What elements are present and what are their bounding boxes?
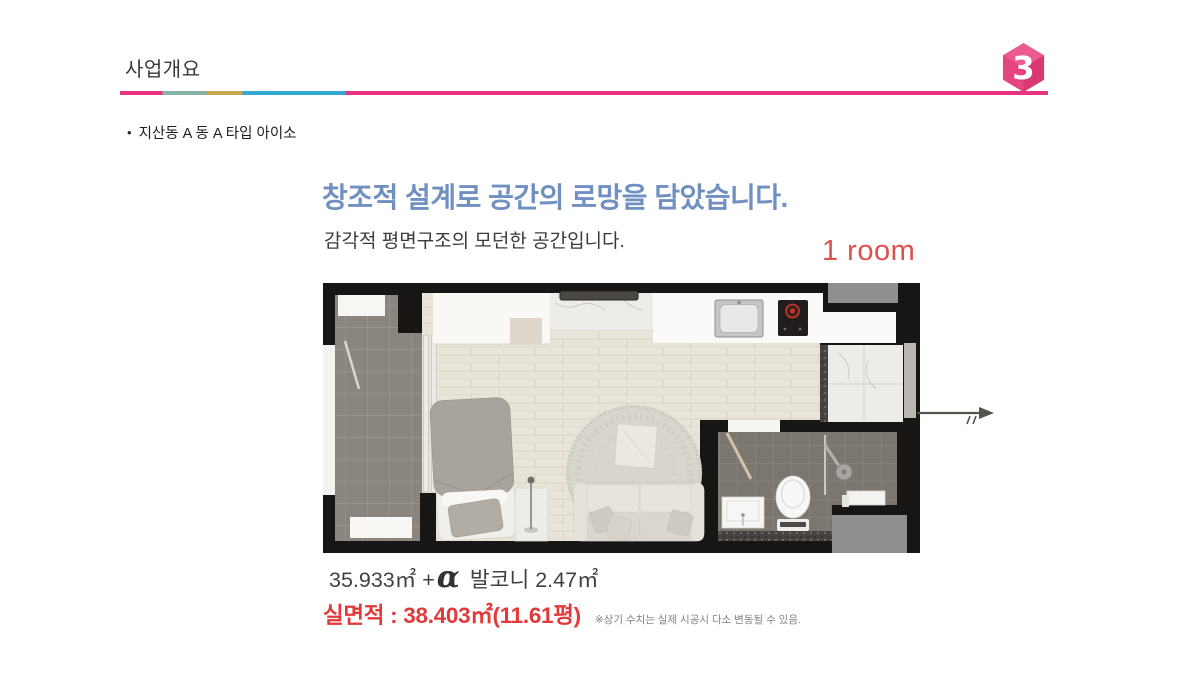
- alpha-symbol: α: [437, 563, 460, 593]
- exterior-block-bottom: [832, 515, 907, 553]
- gross-area-line: 35.933㎡ + α 발코니 2.47㎡: [329, 563, 599, 594]
- entry-marble-strip: [550, 291, 653, 330]
- sliding-door: [424, 335, 429, 492]
- disclaimer-note: ※상기 수치는 실제 시공시 다소 변동될 수 있음.: [595, 612, 801, 627]
- entry-door-gap: [904, 343, 916, 418]
- exit-arrow-icon: [917, 407, 994, 424]
- net-area-line: 실면적 : 38.403㎡(11.61평) ※상기 수치는 실제 시공시 다소 …: [323, 598, 801, 630]
- balcony: [323, 295, 422, 541]
- bathroom-door-gap: [728, 420, 780, 432]
- hexagon-3-logo-icon: 3: [1000, 42, 1047, 93]
- balcony-window: [323, 345, 335, 495]
- floor-cushion: [615, 424, 658, 469]
- kitchen-sink: [715, 300, 763, 337]
- bed: [429, 397, 516, 541]
- balcony-area-text: 발코니 2.47㎡: [470, 563, 599, 594]
- door-mat: [560, 291, 638, 300]
- page-title: 사업개요: [125, 53, 201, 82]
- room-type-label: 1 room: [822, 235, 915, 268]
- net-area-text: 실면적 : 38.403㎡(11.61평): [323, 598, 581, 630]
- header-divider-rule: [120, 91, 1048, 95]
- bullet-text: 지산동 A 동 A 타입 아이소: [139, 122, 297, 143]
- sofa: [574, 483, 704, 541]
- main-heading: 창조적 설계로 공간의 로망을 담았습니다.: [322, 176, 788, 216]
- toilet: [776, 476, 810, 531]
- entry-hall: [820, 343, 916, 422]
- exterior-block-top: [828, 283, 898, 303]
- gross-area-prefix: 35.933㎡ +: [329, 563, 435, 594]
- logo-glyph: 3: [1012, 49, 1034, 87]
- bathroom: [718, 420, 907, 553]
- closet: [433, 293, 550, 344]
- floor-plan: [323, 283, 998, 553]
- shower-bench: [842, 491, 885, 507]
- cooktop: [778, 300, 808, 336]
- vanity-sink: [722, 497, 764, 528]
- bullet-marker: •: [127, 125, 132, 140]
- slide: 사업개요 3 • 지산동 A 동 A 타입 아이소 창조적 설계로 공간의 로망…: [0, 0, 1183, 694]
- sub-heading: 감각적 평면구조의 모던한 공간입니다.: [324, 226, 625, 253]
- breadcrumb: • 지산동 A 동 A 타입 아이소: [127, 122, 297, 143]
